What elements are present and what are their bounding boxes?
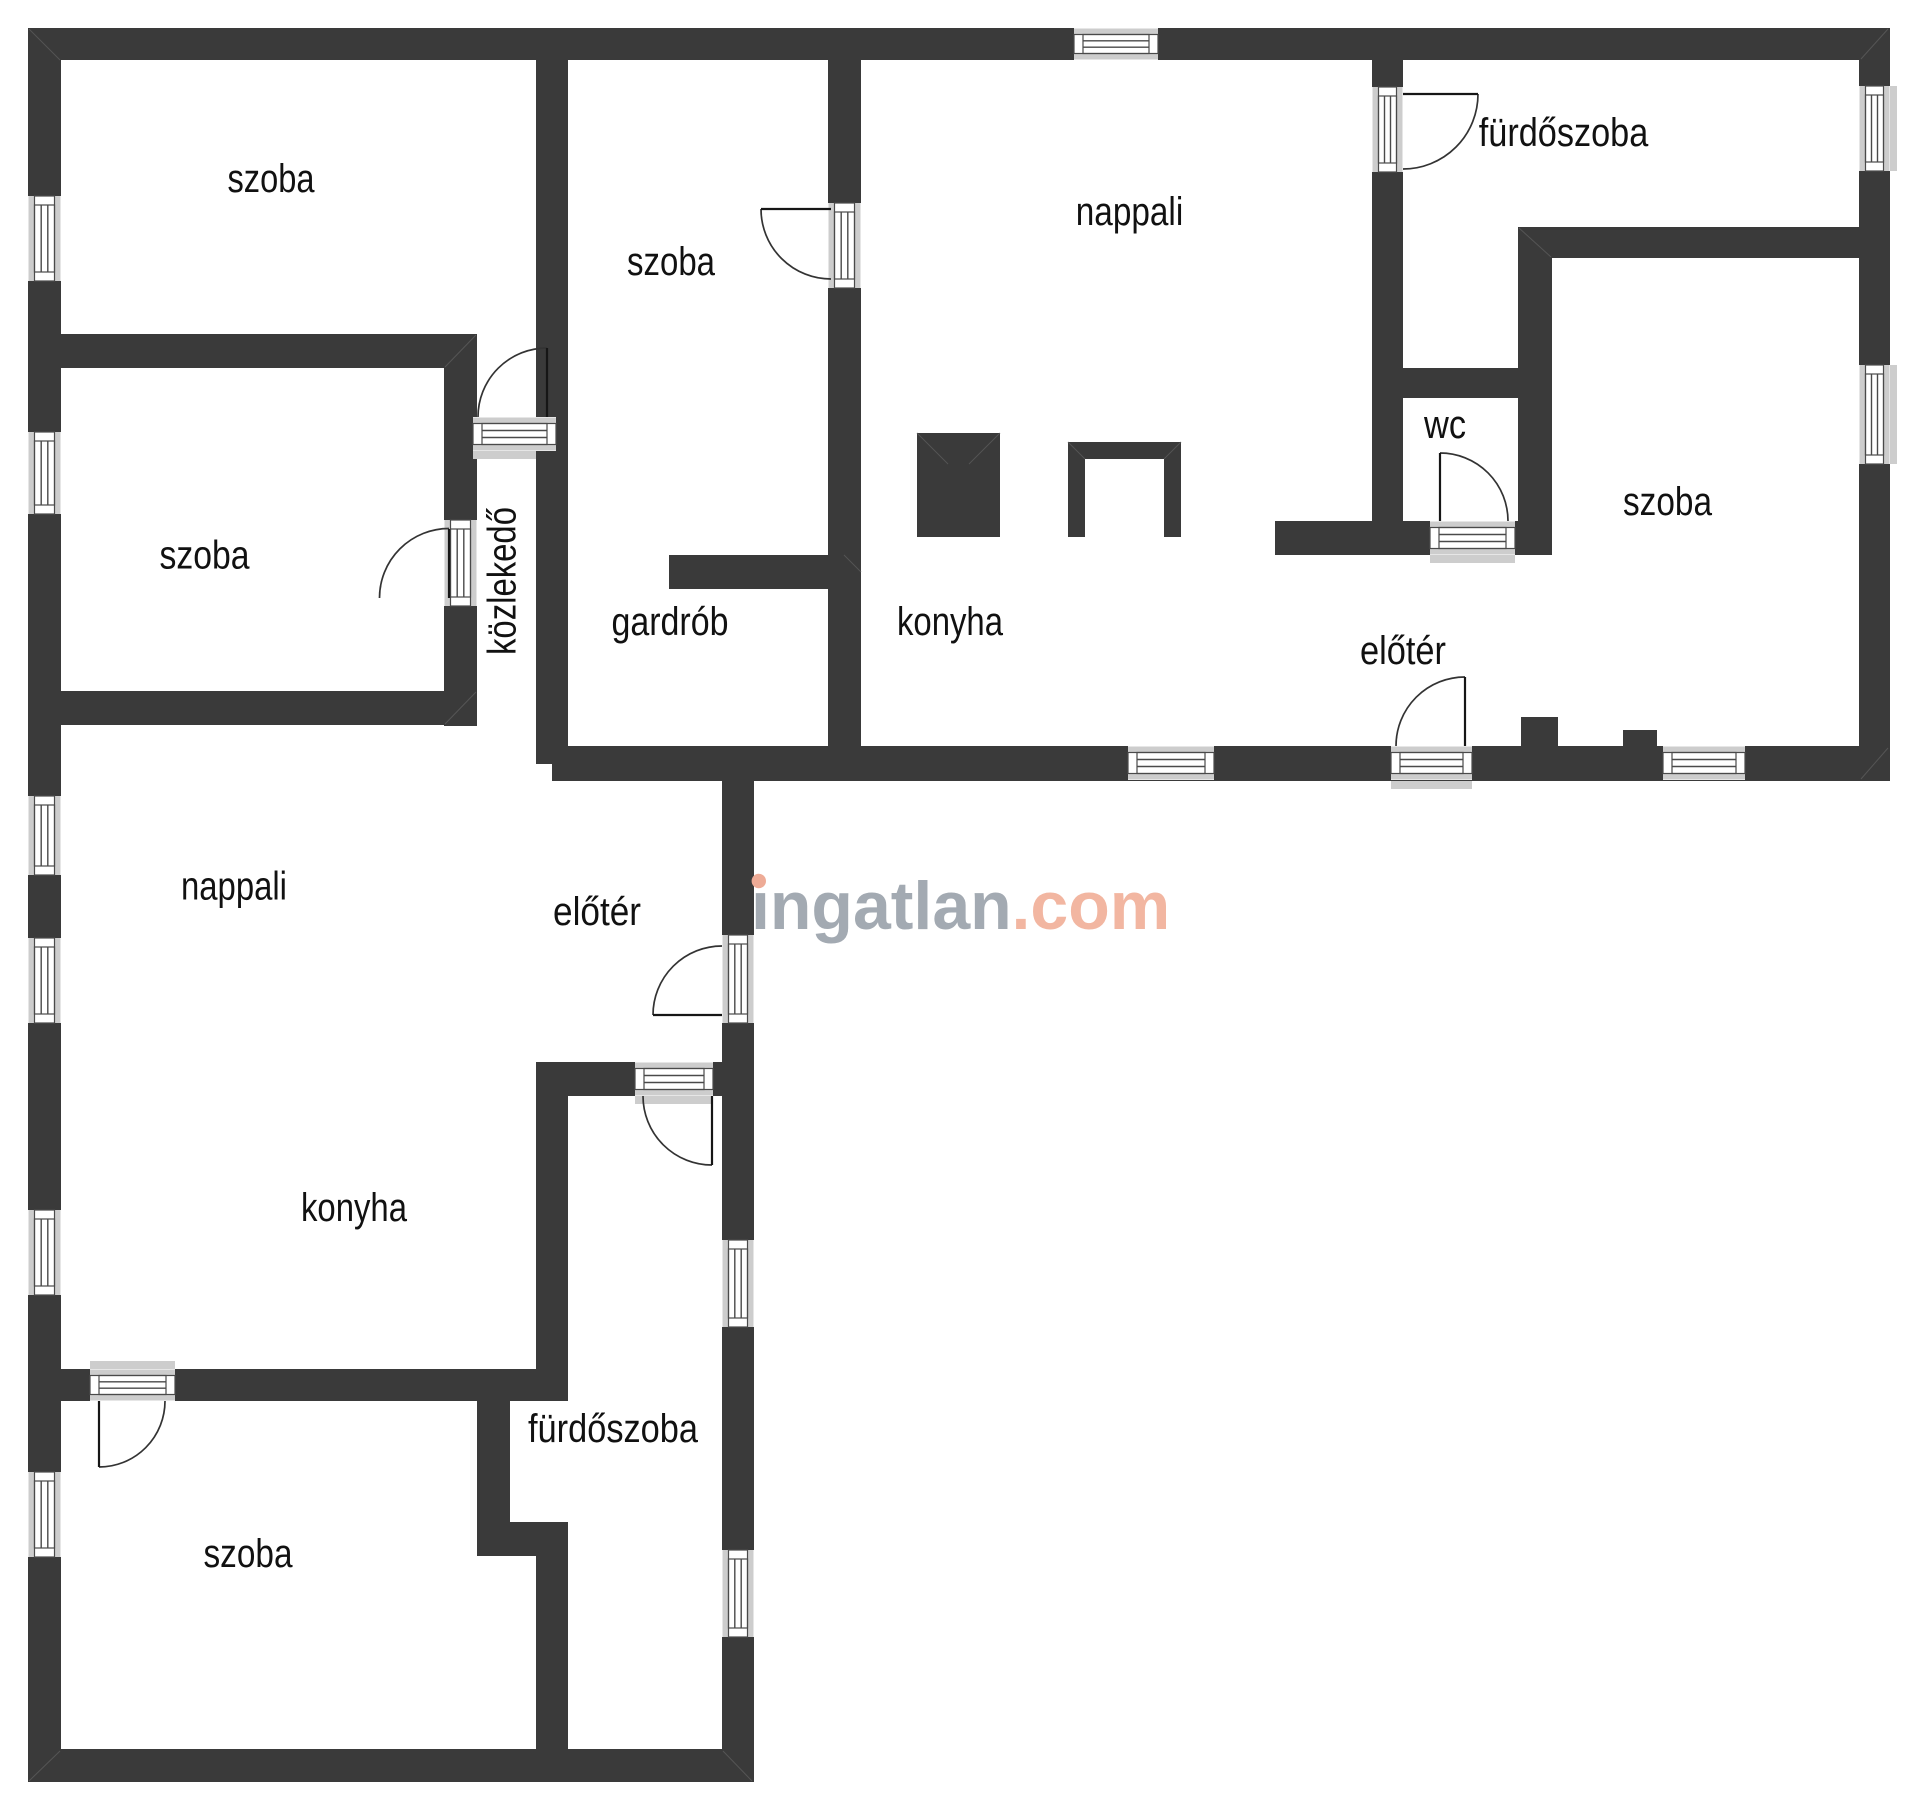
svg-text:előtér: előtér	[1360, 629, 1446, 673]
svg-text:nappali: nappali	[181, 865, 287, 909]
svg-text:wc: wc	[1423, 403, 1466, 447]
svg-text:szoba: szoba	[160, 534, 250, 578]
svg-text:szoba: szoba	[228, 157, 315, 201]
svg-text:szoba: szoba	[627, 240, 715, 284]
svg-text:szoba: szoba	[204, 1532, 293, 1576]
svg-text:fürdőszoba: fürdőszoba	[528, 1407, 698, 1451]
svg-text:.com: .com	[1012, 868, 1171, 944]
svg-text:konyha: konyha	[301, 1186, 407, 1230]
svg-text:gardrób: gardrób	[612, 600, 729, 644]
svg-text:nappali: nappali	[1076, 190, 1184, 234]
svg-text:konyha: konyha	[897, 600, 1003, 644]
svg-text:közlekedő: közlekedő	[481, 507, 525, 655]
svg-text:fürdőszoba: fürdőszoba	[1479, 111, 1649, 155]
svg-text:előtér: előtér	[553, 890, 641, 934]
svg-text:szoba: szoba	[1623, 480, 1712, 524]
svg-text:ıngatlan: ıngatlan	[751, 868, 1012, 944]
